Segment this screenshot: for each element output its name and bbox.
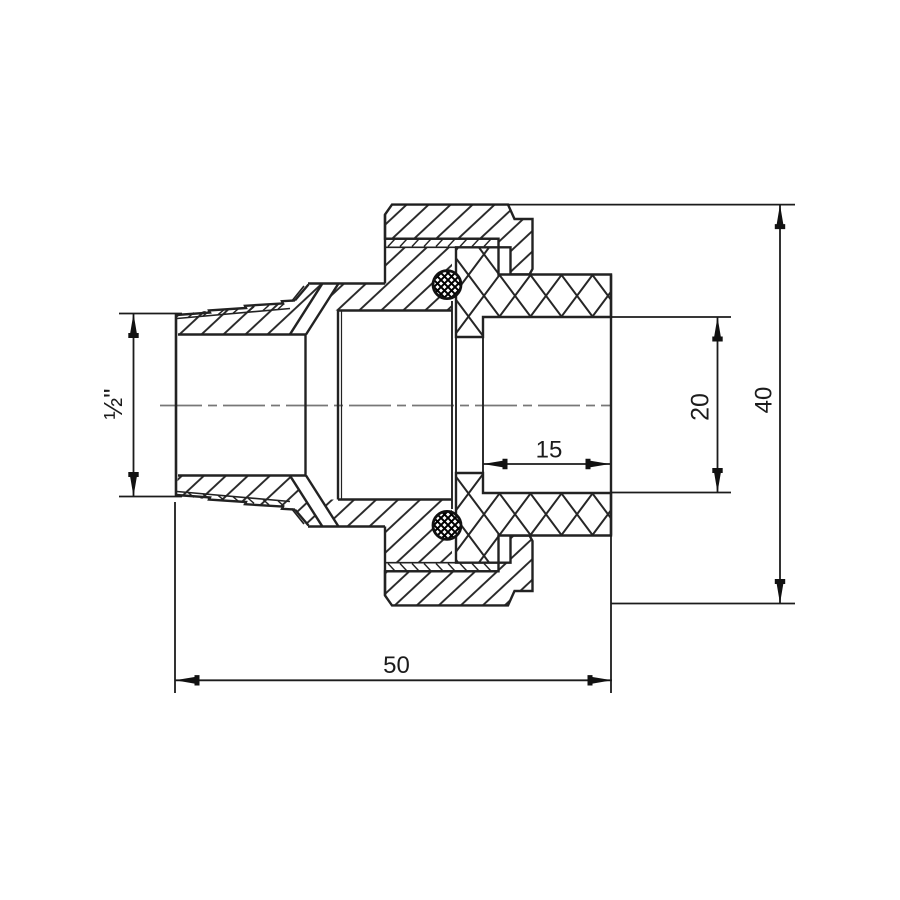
svg-text:15: 15 <box>536 437 563 464</box>
svg-text:20: 20 <box>687 393 715 421</box>
svg-text:½": ½" <box>98 389 128 420</box>
svg-text:50: 50 <box>383 652 410 679</box>
svg-text:40: 40 <box>751 387 778 414</box>
